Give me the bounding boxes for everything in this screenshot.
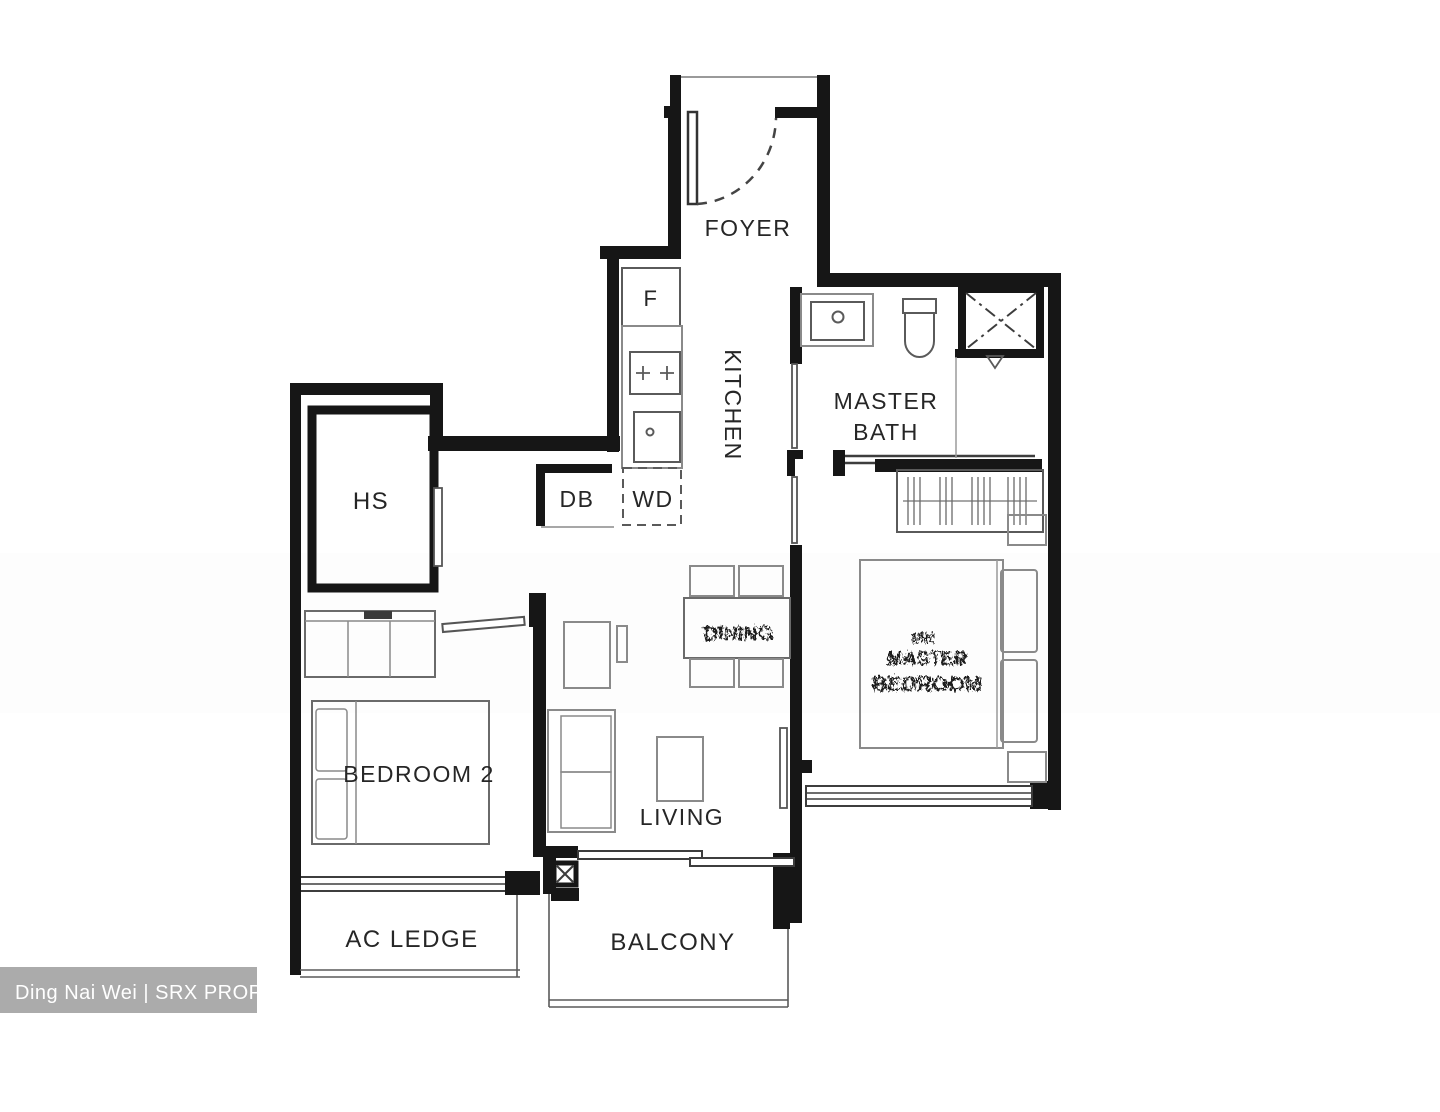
label-wd: WD — [632, 486, 673, 512]
hs-door — [434, 488, 442, 566]
wall-outer-left — [290, 383, 301, 975]
wall-outer-right — [1048, 273, 1061, 810]
wall-foyer-right — [817, 75, 830, 287]
label-db: DB — [560, 486, 595, 512]
wall-column-below — [551, 888, 579, 901]
label-master-bedroom-garbled-3: BEDROOM — [870, 671, 980, 694]
label-dining-garbled: DINING — [701, 621, 771, 643]
wall-db-left — [536, 464, 545, 526]
wall-door-stub-right — [775, 107, 830, 118]
label-master-bedroom-garbled-1: MR — [909, 628, 932, 645]
label-bedroom2: BEDROOM 2 — [343, 761, 495, 787]
label-living: LIVING — [640, 804, 724, 830]
entry-door-leaf — [688, 112, 697, 204]
wall-bedroom2-door-jamb — [529, 593, 546, 627]
balcony-slider-panel-2 — [690, 858, 794, 866]
master-bedroom-door — [792, 477, 797, 543]
wall-slider-jamb — [833, 450, 845, 476]
mbr-window — [806, 786, 1032, 806]
bedroom2-wardrobe-handle — [364, 611, 392, 619]
wall-bedroom2-right — [533, 593, 546, 857]
wall-window-end-block — [505, 871, 540, 895]
wall-bath-door-jamb-v — [787, 450, 795, 476]
wall-foyer-left-lower — [668, 117, 681, 253]
wall-door-hinge-block — [664, 106, 681, 118]
wall-corridor-slab — [428, 436, 620, 451]
floor-plan-canvas: FOYER F KITCHEN MASTER BATH HS DB WD BED… — [0, 0, 1440, 1112]
wall-top-west — [290, 383, 443, 395]
label-balcony: BALCONY — [610, 929, 735, 956]
label-master-bath-1: MASTER — [834, 388, 939, 414]
wall-kitchen-left — [607, 252, 619, 452]
label-fridge: F — [644, 286, 659, 311]
wall-mbr-window-corner — [1030, 781, 1060, 809]
masterbath-door — [792, 364, 797, 448]
label-foyer: FOYER — [705, 215, 792, 241]
label-hs: HS — [353, 488, 389, 515]
watermark-text: Ding Nai Wei | SRX PROPERTY — [15, 982, 317, 1004]
wall-masterbath-top — [830, 273, 1060, 287]
wall-notch — [800, 760, 812, 773]
label-master-bedroom-garbled-2: MASTER — [885, 647, 966, 668]
label-kitchen: KITCHEN — [720, 349, 746, 460]
label-ac-ledge: AC LEDGE — [345, 926, 478, 953]
label-master-bath-2: BATH — [853, 419, 919, 445]
wall-db-top — [536, 464, 612, 473]
balcony-slider-panel-1 — [578, 851, 702, 859]
living-window-strip — [780, 728, 787, 808]
